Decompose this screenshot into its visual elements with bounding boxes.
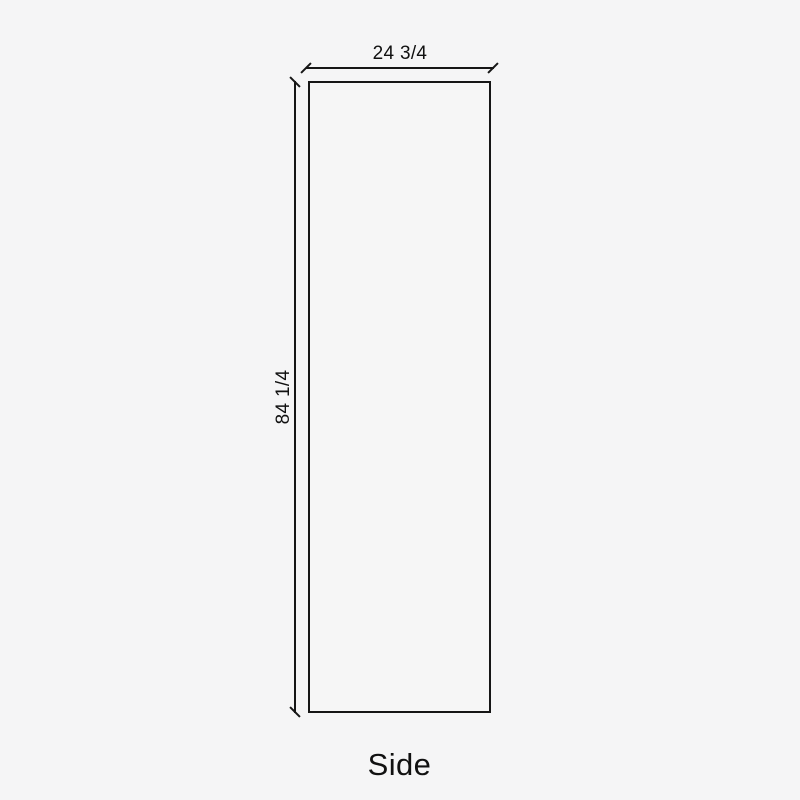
side-panel-outline [308, 81, 491, 713]
drawing-canvas: 24 3/4 84 1/4 Side [0, 0, 800, 800]
width-dimension-label: 24 3/4 [306, 44, 494, 64]
drawing-caption: Side [308, 747, 491, 783]
height-dimension-label: 84 1/4 [274, 370, 294, 425]
width-dimension-line [306, 67, 494, 69]
height-dimension-line [294, 81, 296, 713]
